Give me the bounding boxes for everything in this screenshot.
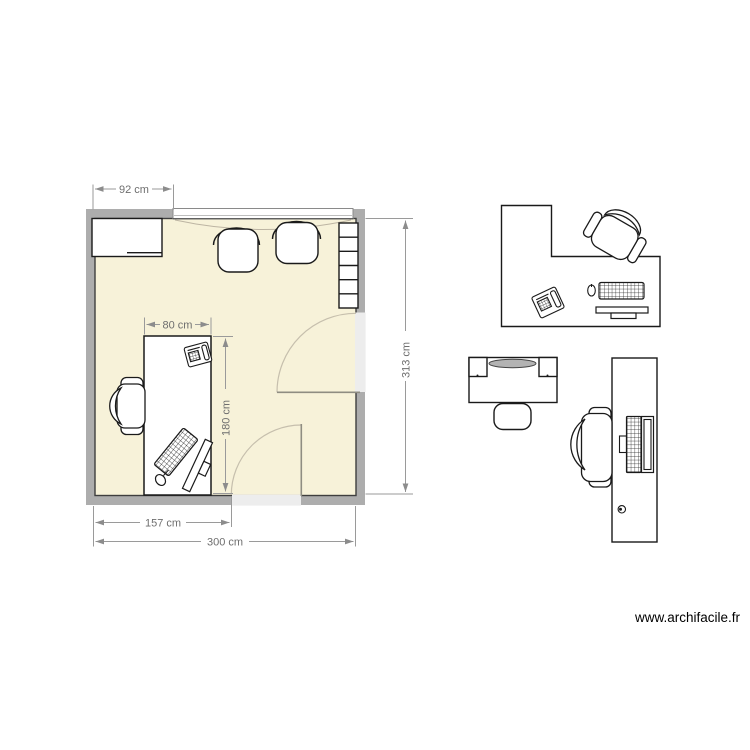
- dimension-label: 80 cm: [163, 320, 193, 332]
- furniture-palette: [469, 199, 660, 542]
- chair-1[interactable]: [214, 228, 260, 272]
- dimension-300: 300 cm: [96, 506, 356, 549]
- palette-mouse-2[interactable]: [618, 506, 625, 513]
- dimension-313: 313 cm: [366, 219, 414, 495]
- dimension-label: 300 cm: [207, 537, 243, 549]
- shelf-unit[interactable]: [339, 223, 358, 308]
- wardrobe-cabinet[interactable]: [92, 219, 162, 257]
- chair-2[interactable]: [273, 222, 321, 264]
- floorplan-svg: 92 cm 80 cm 180 cm 313 cm: [0, 0, 750, 750]
- palette-office-chair-2[interactable]: [571, 408, 612, 488]
- palette-computer-desk[interactable]: [571, 358, 657, 542]
- floorplan-canvas: 92 cm 80 cm 180 cm 313 cm: [0, 0, 750, 750]
- door-opening-bottom[interactable]: [232, 495, 301, 506]
- palette-dressing-table[interactable]: [469, 358, 557, 430]
- window[interactable]: [173, 209, 353, 220]
- dimension-label: 92 cm: [119, 184, 149, 196]
- dimension-label: 157 cm: [145, 518, 181, 530]
- palette-corner-desk[interactable]: [502, 199, 661, 327]
- palette-stool[interactable]: [494, 404, 531, 430]
- dimension-92: 92 cm: [93, 184, 174, 210]
- palette-keyboard[interactable]: [599, 283, 644, 300]
- watermark: www.archifacile.fr: [634, 610, 741, 625]
- dimension-label: 180 cm: [221, 400, 233, 436]
- door-opening-right[interactable]: [355, 313, 366, 393]
- palette-mouse[interactable]: [588, 284, 596, 296]
- dimension-label: 313 cm: [401, 342, 413, 378]
